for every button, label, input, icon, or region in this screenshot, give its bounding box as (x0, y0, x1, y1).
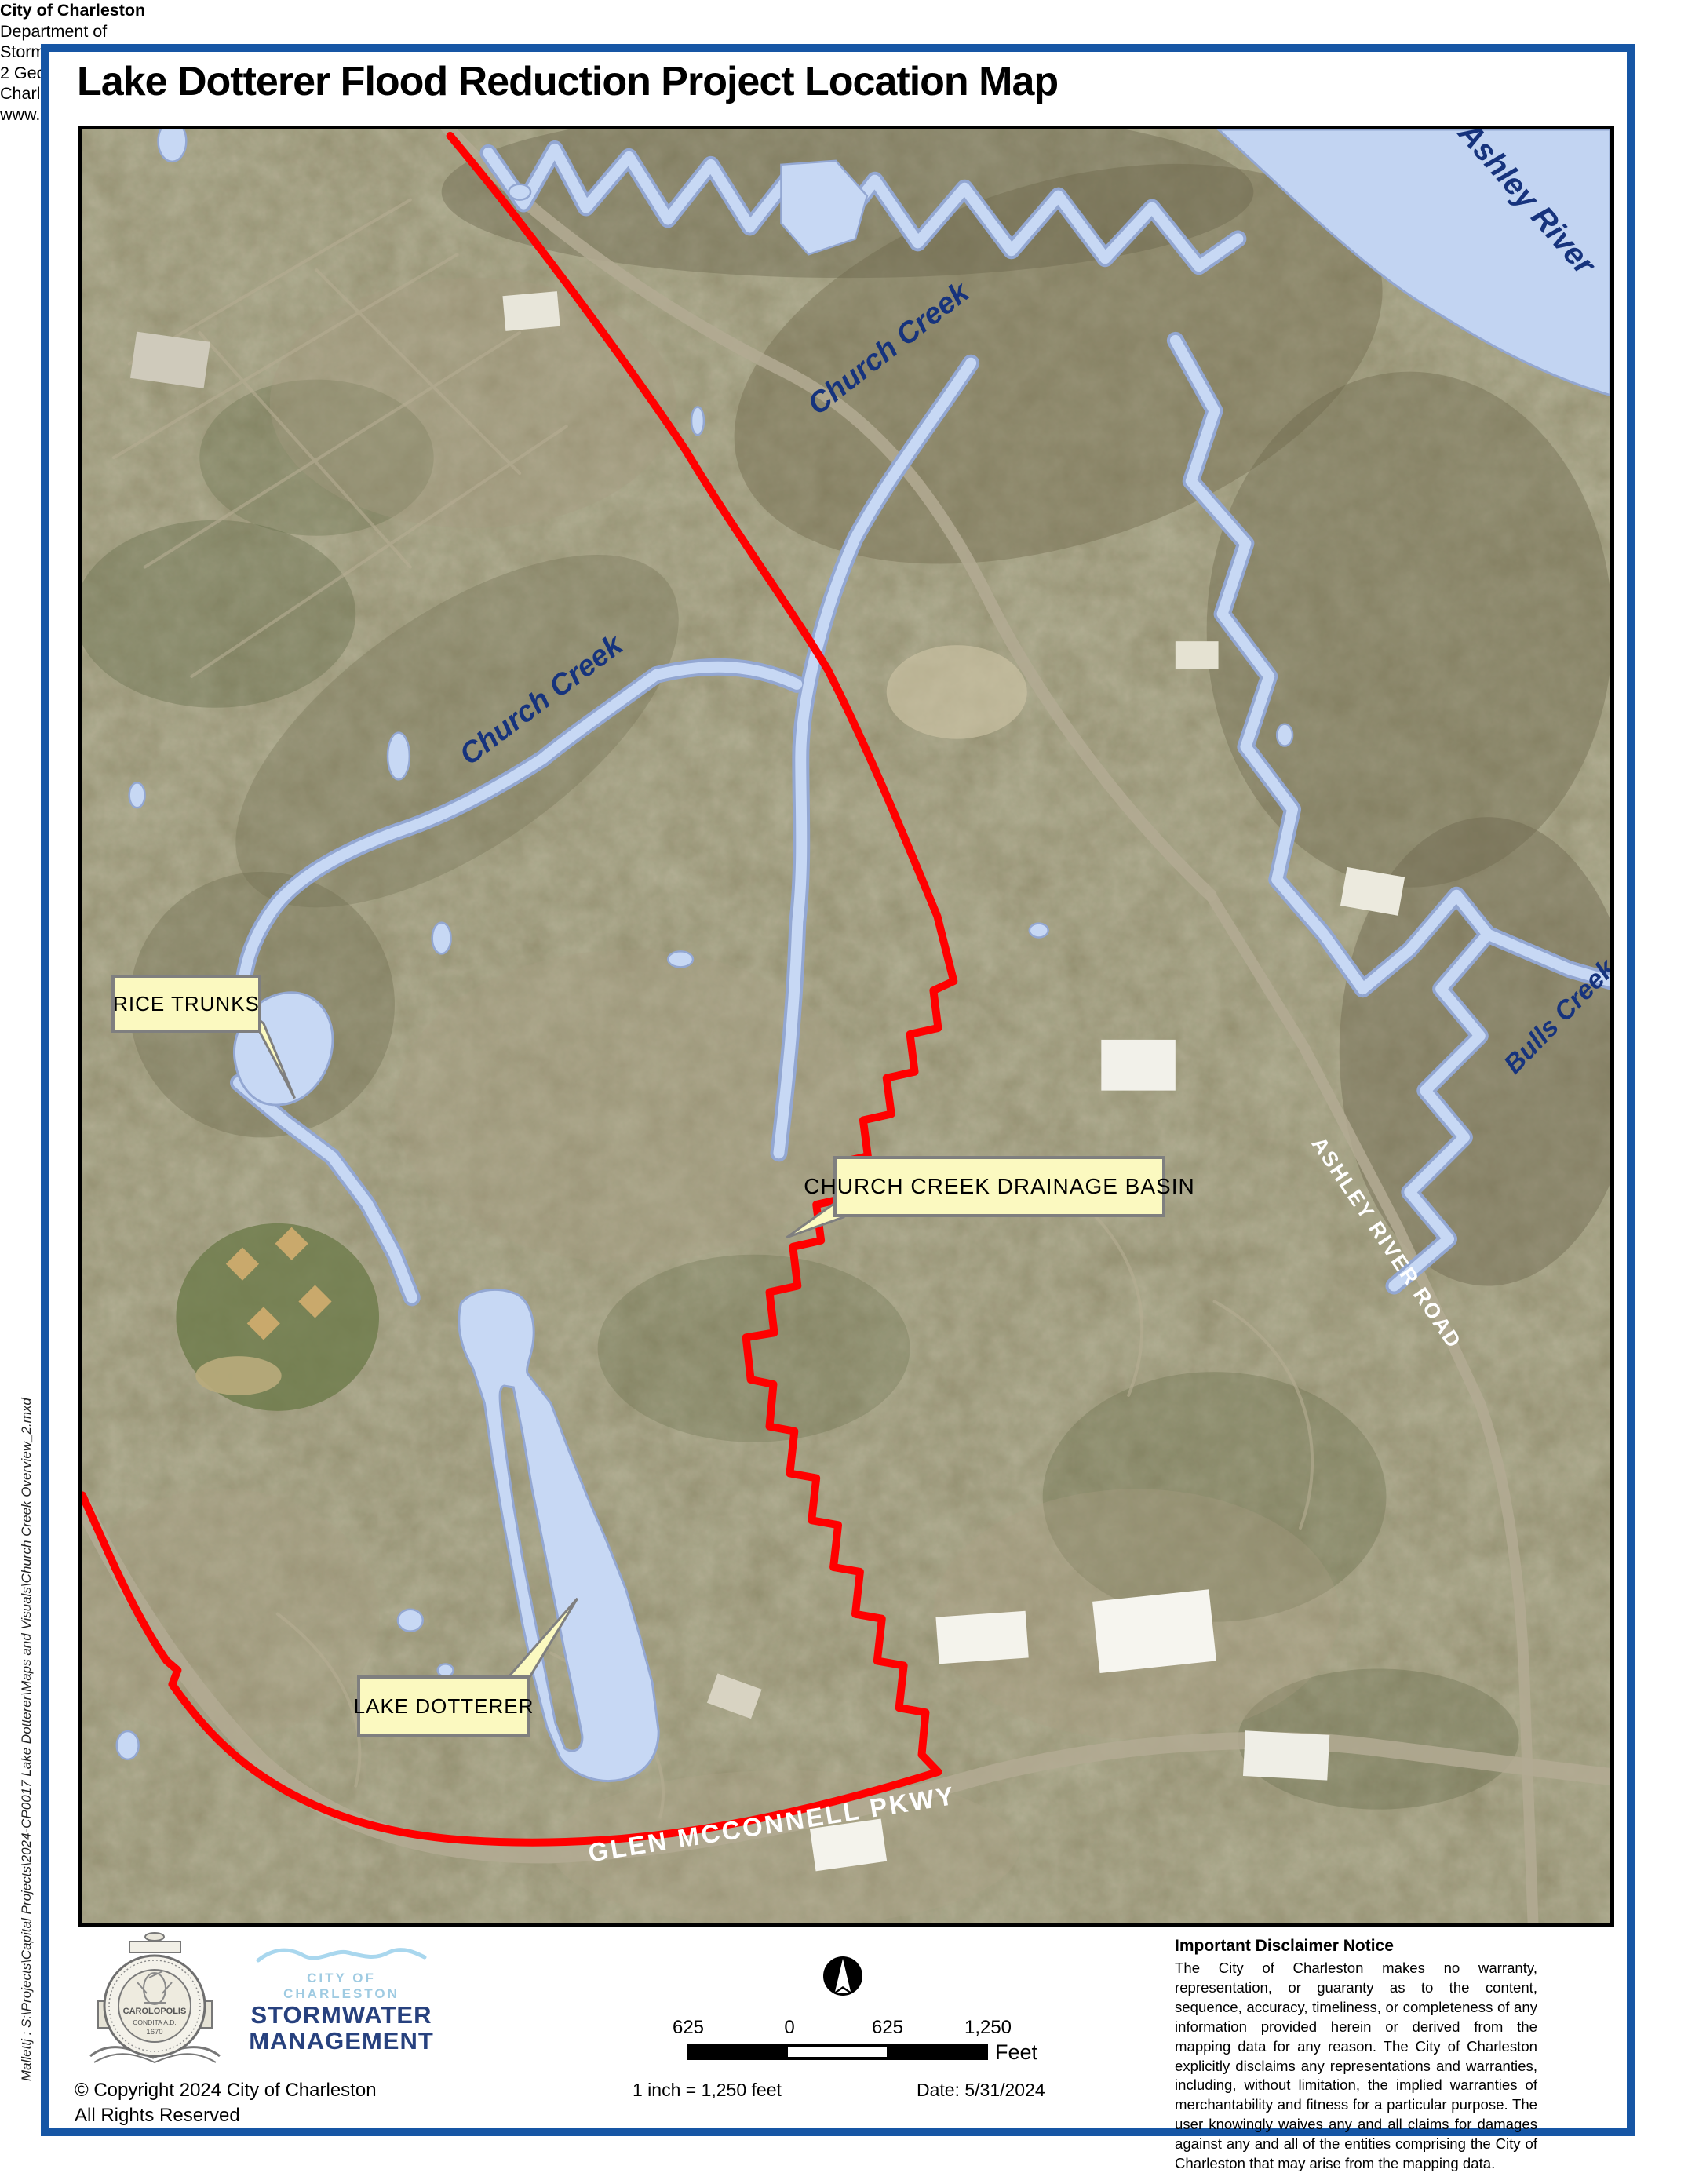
stormwater-brand: CITY OF CHARLESTON STORMWATER MANAGEMENT (247, 1945, 436, 2054)
scale-tick-625-left: 625 (673, 2017, 704, 2039)
copyright-line1: © Copyright 2024 City of Charleston (75, 2080, 377, 2102)
seal-year: 1670 (146, 2028, 162, 2036)
address-line: Department of (0, 21, 1688, 42)
wave-icon (255, 1945, 428, 1965)
scale-bar-segment (688, 2045, 788, 2058)
seal-name: CAROLOPOLIS (123, 2007, 187, 2016)
brand-city: CITY OF CHARLESTON (247, 1971, 436, 2002)
seal-condita: CONDITA A.D. (133, 2018, 177, 2026)
lake-dotterer-callout-text: LAKE DOTTERER (354, 1694, 534, 1719)
map-canvas: Church Creek Church Creek Ashley River B… (78, 126, 1614, 1927)
scale-bar-segment (788, 2045, 888, 2058)
mxd-file-path: Mallettj : S:\Projects\Capital Projects\… (19, 1398, 35, 2081)
page-title: Lake Dotterer Flood Reduction Project Lo… (77, 58, 1058, 105)
map-sheet: Lake Dotterer Flood Reduction Project Lo… (0, 0, 1688, 2184)
drainage-basin-callout-text: CHURCH CREEK DRAINAGE BASIN (804, 1174, 1194, 1199)
brand-line1: STORMWATER (247, 2002, 436, 2028)
rice-trunks-callout: RICE TRUNKS (111, 975, 261, 1033)
scale-unit: Feet (995, 2040, 1037, 2065)
scale-bar-segment (887, 2045, 986, 2058)
brand-line2: MANAGEMENT (247, 2028, 436, 2054)
scale-ratio: 1 inch = 1,250 feet (633, 2080, 782, 2101)
satellite-map: Church Creek Church Creek Ashley River B… (82, 129, 1610, 1923)
drainage-basin-callout: CHURCH CREEK DRAINAGE BASIN (833, 1156, 1165, 1217)
scale-bar (687, 2044, 988, 2060)
sports-fields (176, 1223, 379, 1411)
map-date: Date: 5/31/2024 (917, 2080, 1045, 2101)
copyright-line2: All Rights Reserved (75, 2105, 240, 2127)
scale-tick-0: 0 (784, 2017, 794, 2039)
address-line: City of Charleston (0, 0, 1688, 21)
north-arrow-icon (822, 1954, 863, 1998)
city-seal: CAROLOPOLIS CONDITA A.D. 1670 (75, 1931, 235, 2080)
disclaimer-block: Important Disclaimer Notice The City of … (1175, 1937, 1537, 2174)
disclaimer-body: The City of Charleston makes no warranty… (1175, 1959, 1537, 2174)
scale-tick-625-right: 625 (872, 2017, 903, 2039)
disclaimer-title: Important Disclaimer Notice (1175, 1937, 1537, 1956)
lake-dotterer-callout: LAKE DOTTERER (357, 1675, 530, 1737)
scale-tick-1250: 1,250 (964, 2017, 1012, 2039)
rice-trunks-callout-text: RICE TRUNKS (113, 992, 260, 1016)
